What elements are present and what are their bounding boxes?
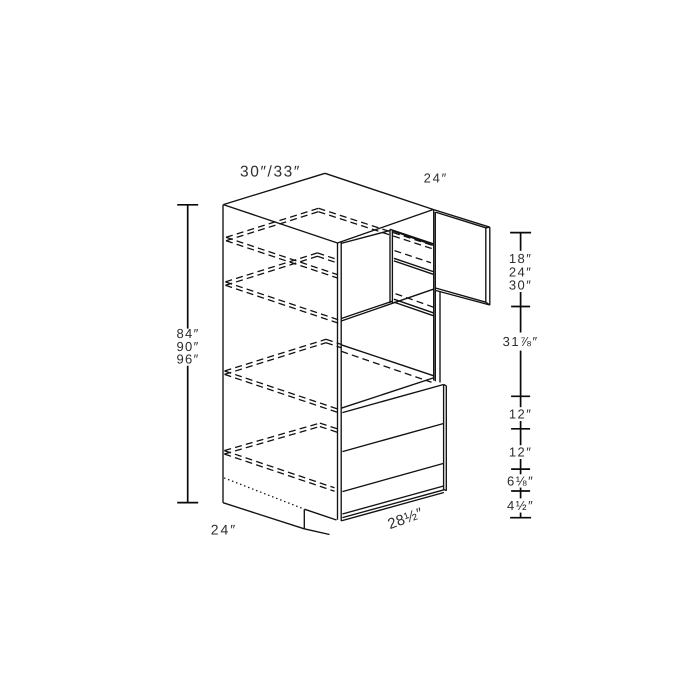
svg-text:31⅞″: 31⅞″ <box>503 334 539 349</box>
svg-text:30″: 30″ <box>509 277 533 292</box>
svg-text:12″: 12″ <box>509 407 533 422</box>
svg-text:96″: 96″ <box>177 352 200 367</box>
svg-text:12″: 12″ <box>509 444 533 459</box>
svg-text:28½″: 28½″ <box>385 504 425 533</box>
svg-text:4½″: 4½″ <box>507 498 534 513</box>
svg-text:6⅛″: 6⅛″ <box>507 473 534 488</box>
svg-text:30″/33″: 30″/33″ <box>240 163 301 180</box>
svg-text:24″: 24″ <box>424 171 448 186</box>
svg-text:24″: 24″ <box>211 522 238 538</box>
